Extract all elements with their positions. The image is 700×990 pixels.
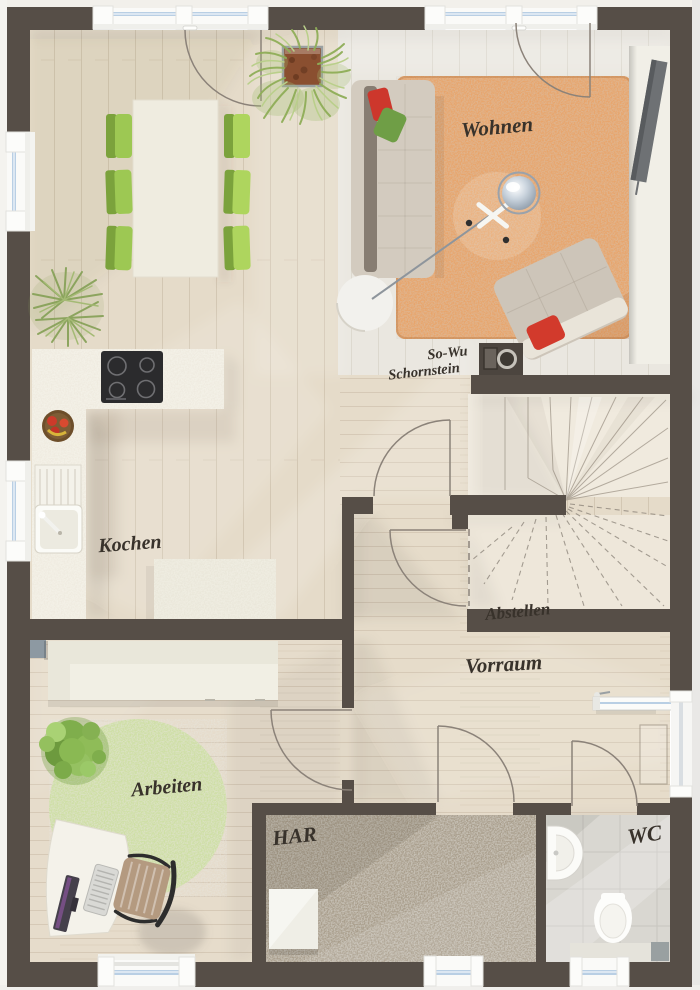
svg-text:Vorraum: Vorraum bbox=[464, 650, 542, 678]
svg-text:Kochen: Kochen bbox=[97, 531, 163, 557]
svg-text:HAR: HAR bbox=[270, 822, 318, 851]
svg-text:WC: WC bbox=[626, 820, 664, 850]
